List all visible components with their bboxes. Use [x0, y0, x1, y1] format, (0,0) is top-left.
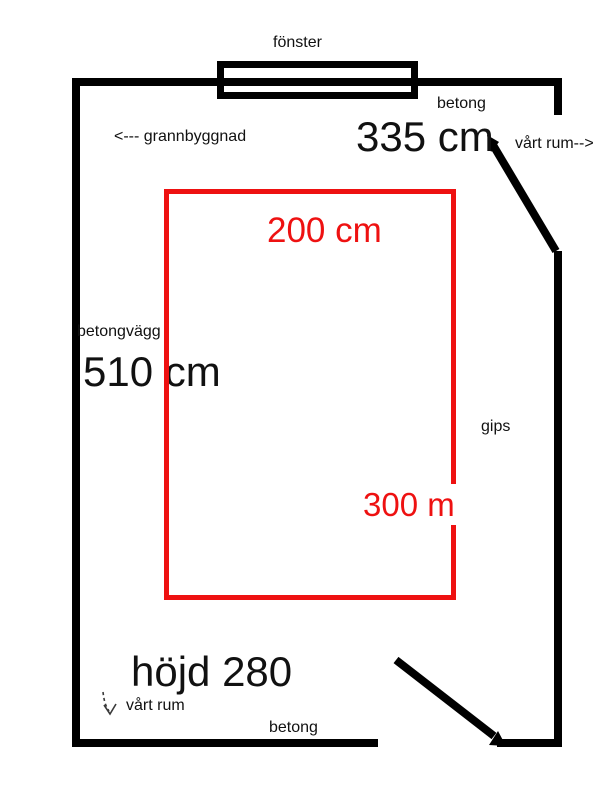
door-swing-bottom-icon	[396, 660, 506, 746]
our-room-right-label: vårt rum-->	[515, 136, 594, 152]
top-wall-material-label: betong	[437, 96, 486, 112]
top-wall-length-label: 335 cm	[356, 116, 494, 158]
red-measure-rect	[164, 189, 456, 600]
our-room-bottom-label: vårt rum	[126, 698, 185, 714]
down-arrow-icon	[103, 692, 116, 714]
red-height-label: 300 m	[358, 484, 460, 525]
neighbor-building-label: <--- grannbyggnad	[114, 129, 246, 145]
door-swing-top-icon	[487, 135, 556, 251]
ceiling-height-label: höjd 280	[131, 651, 292, 693]
floor-plan-canvas: fönster betong 335 cm vårt rum--> <--- g…	[0, 0, 600, 800]
window-label: fönster	[273, 35, 322, 51]
right-wall-material-label: gips	[481, 419, 510, 435]
red-width-label: 200 cm	[267, 213, 382, 248]
bottom-wall-material-label: betong	[269, 720, 318, 736]
left-wall-material-label: betongvägg	[77, 324, 161, 340]
